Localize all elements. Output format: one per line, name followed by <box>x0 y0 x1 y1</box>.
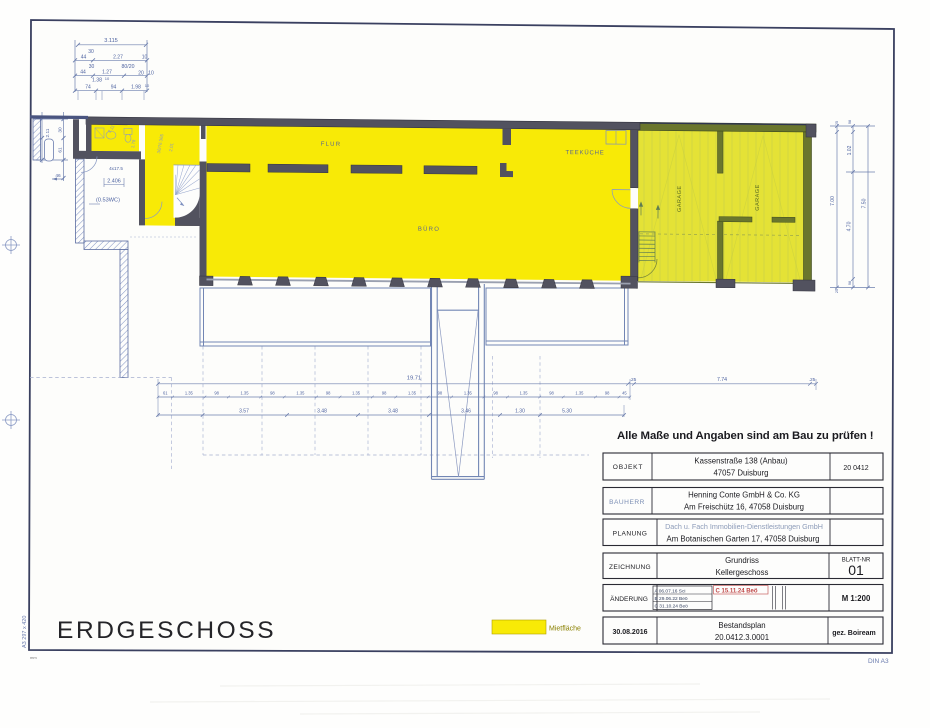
svg-text:1.35: 1.35 <box>575 390 584 395</box>
svg-text:FLUR: FLUR <box>321 142 341 148</box>
svg-text:1.35: 1.35 <box>241 390 250 395</box>
svg-text:M 1:200: M 1:200 <box>842 594 871 603</box>
svg-text:7.00: 7.00 <box>830 196 836 206</box>
svg-text:1.35: 1.35 <box>296 390 305 395</box>
svg-text:BAUHERR: BAUHERR <box>609 499 645 506</box>
svg-text:Bestandsplan: Bestandsplan <box>718 621 765 630</box>
svg-text:gez. Boiream: gez. Boiream <box>832 630 876 637</box>
svg-text:.25: .25 <box>630 377 637 383</box>
svg-text:30: 30 <box>89 64 95 70</box>
svg-text:5.30: 5.30 <box>562 408 572 414</box>
svg-text:1.30: 1.30 <box>515 408 525 414</box>
svg-text:GARAGE: GARAGE <box>677 185 683 212</box>
svg-text:1.35: 1.35 <box>185 390 194 395</box>
svg-text:3.46: 3.46 <box>461 408 471 414</box>
svg-text:98: 98 <box>848 120 852 124</box>
svg-text:OBJEKT: OBJEKT <box>613 464 643 471</box>
svg-text:98: 98 <box>549 390 554 395</box>
svg-text:44: 44 <box>80 70 86 76</box>
svg-text:C 15.11.24 Beö: C 15.11.24 Beö <box>716 589 758 595</box>
svg-text:94: 94 <box>111 85 117 91</box>
svg-text:Alle Maße und Angaben sind am: Alle Maße und Angaben sind am Bau zu prü… <box>617 430 873 442</box>
svg-text:74: 74 <box>85 85 91 91</box>
svg-text:45: 45 <box>622 390 627 395</box>
svg-text:10: 10 <box>105 76 110 81</box>
svg-text:1.35: 1.35 <box>408 390 417 395</box>
svg-text:10: 10 <box>148 71 154 77</box>
svg-text:7.74: 7.74 <box>717 377 727 383</box>
svg-text:44: 44 <box>81 55 87 61</box>
svg-text:47057 Duisburg: 47057 Duisburg <box>713 469 768 478</box>
svg-text:25: 25 <box>835 121 839 125</box>
svg-text:mm: mm <box>30 655 37 660</box>
svg-text:1.27: 1.27 <box>102 70 112 76</box>
svg-text:A3 297 x 420: A3 297 x 420 <box>22 616 28 648</box>
svg-text:2.27: 2.27 <box>113 55 123 61</box>
svg-text:10: 10 <box>145 83 150 88</box>
svg-text:20 0412: 20 0412 <box>843 465 868 472</box>
svg-text:Grundriss: Grundriss <box>725 556 759 565</box>
svg-text:1.35: 1.35 <box>464 390 473 395</box>
svg-text:98: 98 <box>493 390 498 395</box>
svg-text:Mietfläche: Mietfläche <box>549 626 581 633</box>
svg-text:(0.53WC): (0.53WC) <box>96 198 120 204</box>
svg-text:61: 61 <box>163 390 168 395</box>
svg-text:98: 98 <box>382 390 387 395</box>
svg-text:B 29.06.22 Beö: B 29.06.22 Beö <box>655 596 688 602</box>
svg-text:A 06.07.16 Sci: A 06.07.16 Sci <box>655 589 686 595</box>
svg-text:98: 98 <box>605 390 610 395</box>
svg-text:Dach u. Fach Immobilien-Dienst: Dach u. Fach Immobilien-Dienstleistungen… <box>665 522 823 531</box>
svg-text:Kassenstraße 138 (Anbau): Kassenstraße 138 (Anbau) <box>694 457 788 466</box>
svg-text:98: 98 <box>848 281 852 285</box>
svg-text:20: 20 <box>138 71 144 77</box>
svg-text:Kellergeschoss: Kellergeschoss <box>716 568 769 577</box>
svg-text:98: 98 <box>270 390 275 395</box>
svg-text:01: 01 <box>848 562 864 578</box>
svg-text:4.70: 4.70 <box>847 221 853 231</box>
svg-text:19.71: 19.71 <box>407 376 422 382</box>
svg-text:98: 98 <box>326 390 331 395</box>
svg-text:98: 98 <box>214 390 219 395</box>
svg-text:80/20: 80/20 <box>122 64 135 70</box>
svg-text:Am Freischütz 16, 47058 Duisbu: Am Freischütz 16, 47058 Duisburg <box>684 503 804 512</box>
svg-text:10: 10 <box>142 55 148 61</box>
svg-text:ÄNDERUNG: ÄNDERUNG <box>610 595 648 603</box>
svg-text:98: 98 <box>438 390 443 395</box>
svg-text:30: 30 <box>58 127 64 133</box>
svg-text:PLANUNG: PLANUNG <box>613 531 648 538</box>
svg-text:2.11: 2.11 <box>45 128 51 137</box>
svg-text:7.50: 7.50 <box>862 198 868 208</box>
svg-text:30.08.2016: 30.08.2016 <box>612 629 647 636</box>
svg-text:3.57: 3.57 <box>239 408 249 414</box>
svg-text:GARAGE: GARAGE <box>755 184 761 211</box>
svg-text:C 31.10.24 Beö: C 31.10.24 Beö <box>655 604 689 610</box>
svg-text:.25: .25 <box>809 377 816 383</box>
svg-text:1.35: 1.35 <box>520 390 529 395</box>
svg-text:TEEKÜCHE: TEEKÜCHE <box>565 149 604 156</box>
svg-text:Henning Conte GmbH & Co. KG: Henning Conte GmbH & Co. KG <box>688 491 800 500</box>
svg-text:Am Botanischen Garten 17, 4705: Am Botanischen Garten 17, 47058 Duisburg <box>667 535 820 544</box>
svg-text:4x17.5: 4x17.5 <box>109 166 123 171</box>
svg-text:30: 30 <box>88 49 94 55</box>
svg-text:ERDGESCHOSS: ERDGESCHOSS <box>57 617 276 644</box>
svg-text:1.38: 1.38 <box>92 78 102 84</box>
svg-text:3.115: 3.115 <box>104 38 118 44</box>
svg-text:3.48: 3.48 <box>388 408 398 414</box>
svg-text:ZEICHNUNG: ZEICHNUNG <box>609 564 651 571</box>
svg-text:DIN A3: DIN A3 <box>868 658 889 665</box>
svg-text:61: 61 <box>58 147 64 153</box>
svg-text:3.48: 3.48 <box>317 408 327 414</box>
svg-text:1.02: 1.02 <box>847 145 853 155</box>
svg-text:25: 25 <box>835 289 839 293</box>
svg-text:2.406: 2.406 <box>107 179 121 185</box>
svg-text:BÜRO: BÜRO <box>418 226 440 233</box>
svg-text:1.35: 1.35 <box>352 390 361 395</box>
svg-text:1.98: 1.98 <box>131 85 141 91</box>
svg-text:46: 46 <box>55 173 61 179</box>
svg-text:20.0412.3.0001: 20.0412.3.0001 <box>715 633 769 642</box>
